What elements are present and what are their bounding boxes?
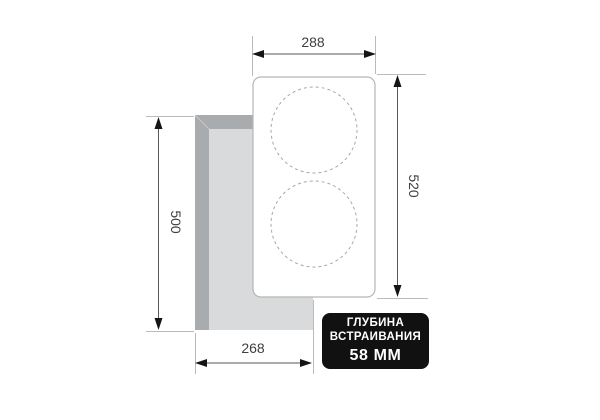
builtin-depth-badge: ГЛУБИНА ВСТРАИВАНИЯ 58 ММ bbox=[322, 313, 429, 369]
dimension-diagram: 288 520 500 268 ГЛУБИНА ВСТРАИВАНИЯ 58 М… bbox=[0, 0, 600, 420]
badge-line-2: ВСТРАИВАНИЯ bbox=[330, 331, 421, 344]
dim-label-top-width: 288 bbox=[301, 34, 325, 50]
badge-depth-value: 58 ММ bbox=[350, 347, 402, 365]
diagram-canvas: 288 520 500 268 bbox=[0, 0, 600, 420]
badge-line-1: ГЛУБИНА bbox=[347, 317, 404, 330]
dim-label-bottom-width: 268 bbox=[241, 340, 265, 356]
dim-label-left-height: 500 bbox=[168, 210, 184, 234]
cooktop-panel bbox=[253, 77, 375, 297]
dim-label-right-height: 520 bbox=[406, 174, 422, 198]
